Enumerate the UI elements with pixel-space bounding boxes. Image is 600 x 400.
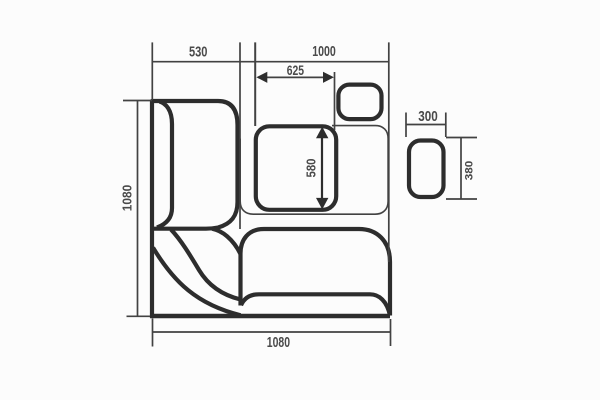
svg-text:300: 300 <box>418 108 438 125</box>
svg-text:530: 530 <box>189 44 208 61</box>
svg-text:580: 580 <box>305 158 319 177</box>
svg-text:625: 625 <box>287 62 304 78</box>
svg-text:380: 380 <box>464 161 476 181</box>
svg-text:1080: 1080 <box>119 185 134 212</box>
svg-text:1000: 1000 <box>312 43 336 60</box>
svg-text:1080: 1080 <box>267 334 290 351</box>
